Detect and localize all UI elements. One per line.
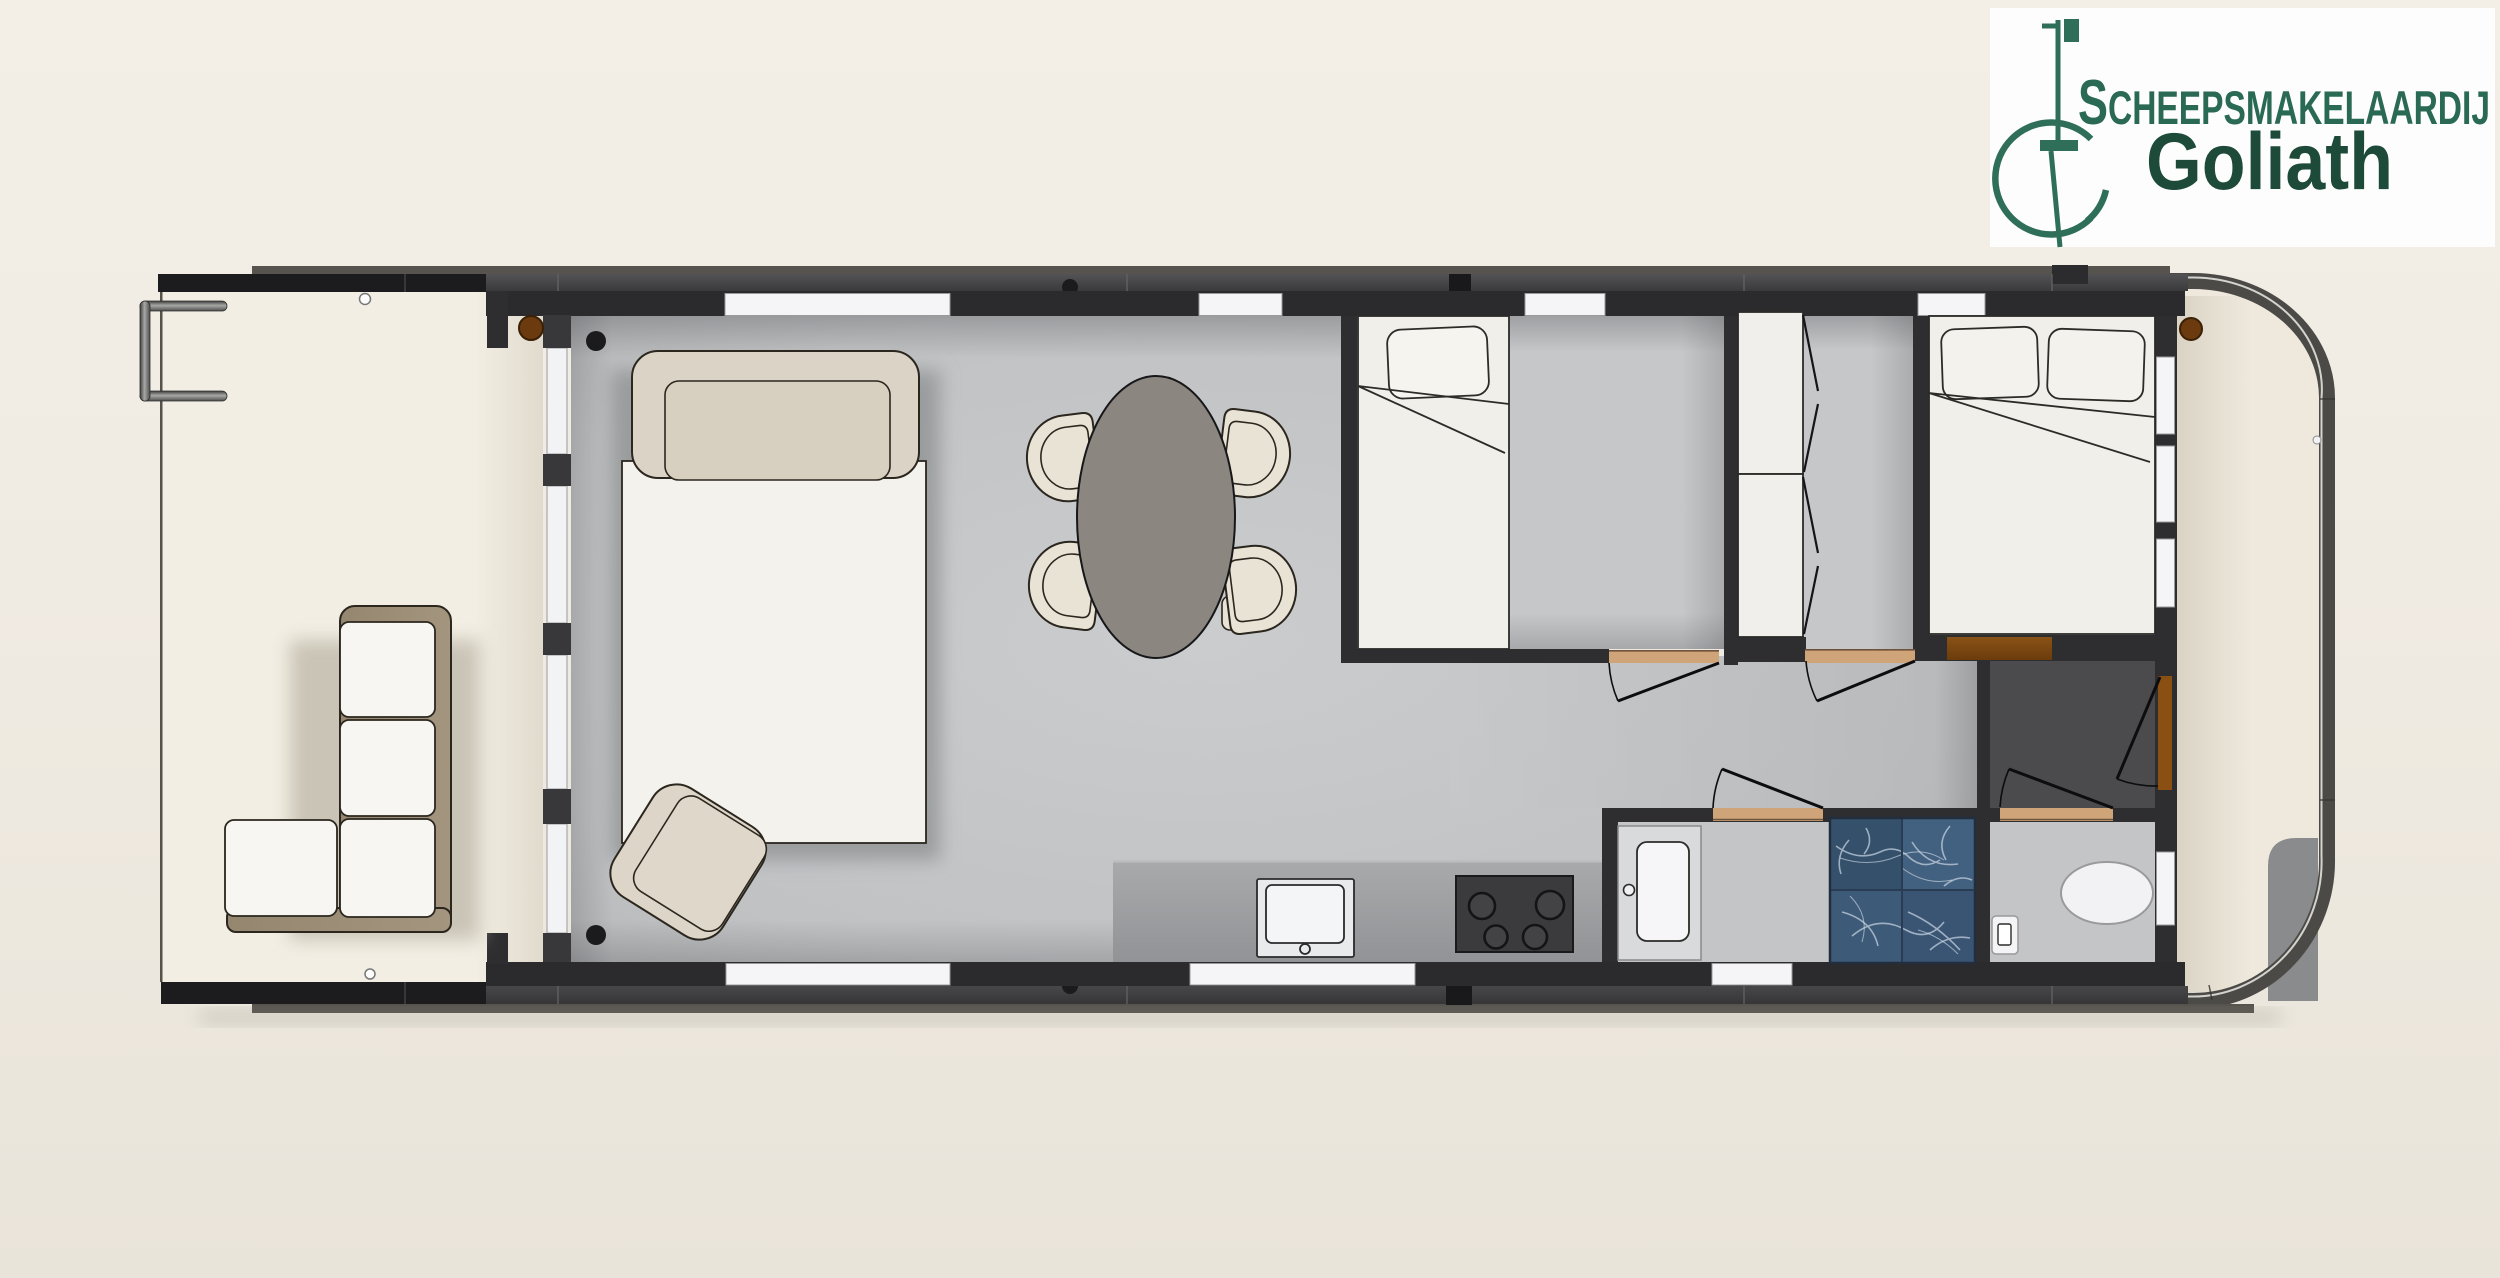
svg-text:Goliath: Goliath	[2146, 117, 2393, 207]
